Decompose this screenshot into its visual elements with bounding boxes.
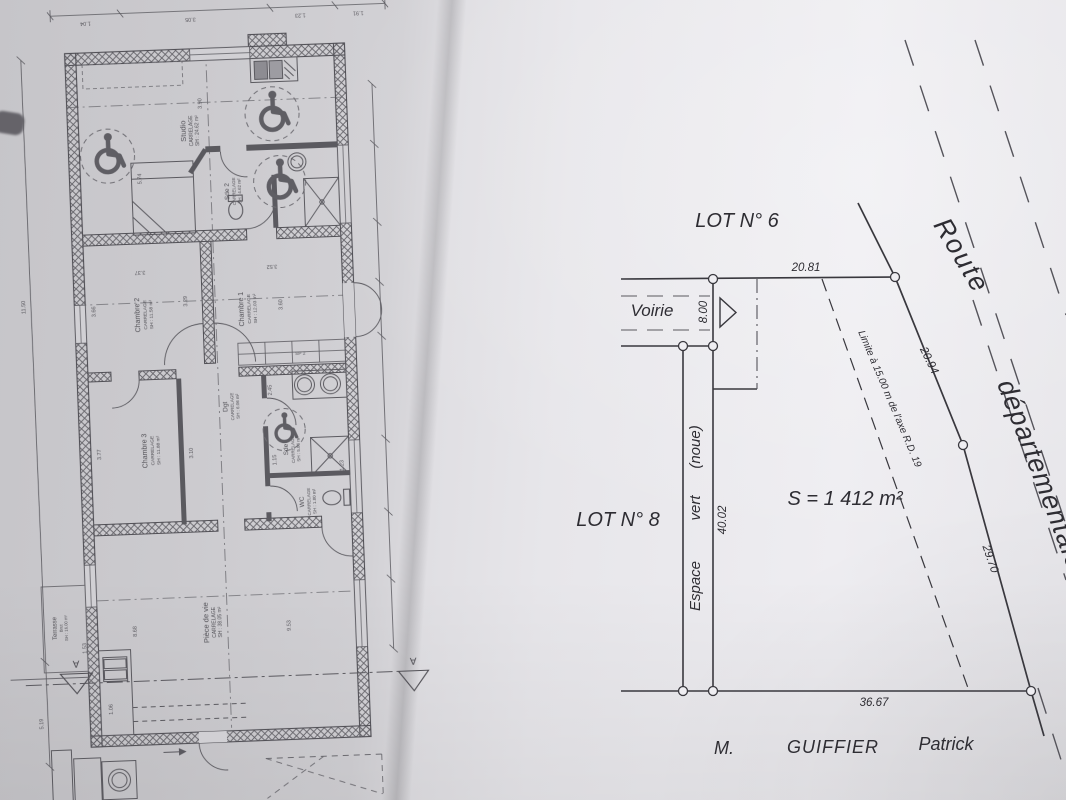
site-plan-drawing: LOT N° 6 LOT N° 8 Voirie S = 1 412 m² 20… — [560, 0, 1066, 800]
left-dimension-line — [17, 56, 54, 771]
section-marker-left-label: A — [72, 658, 79, 669]
room-label-terrasse: Terrasse Brut SH : 16.00 m² — [52, 614, 69, 641]
utility-appliances — [51, 748, 137, 800]
svg-text:CARRELAGE: CARRELAGE — [246, 294, 253, 324]
svg-text:SH : 1.80 m²: SH : 1.80 m² — [311, 488, 317, 514]
dim-kit-a: 1.53 — [82, 643, 88, 654]
room-label-chambre1: Chambre 1 CARRELAGE SH : 12.03 m² — [238, 291, 259, 326]
right-dimension-line — [368, 80, 398, 653]
section-marker-right-label: A — [409, 655, 416, 666]
svg-text:Studio: Studio — [178, 120, 188, 142]
toilet-wc — [323, 489, 351, 506]
access-arrow-icon — [720, 298, 736, 327]
shower-sde2 — [304, 177, 341, 226]
dim-wc-w: 1.23 — [339, 460, 345, 471]
dim-ch2-d: 3.29 — [183, 296, 189, 307]
area-label: S = 1 412 m² — [787, 488, 903, 510]
svg-text:SH : 11.58 m²: SH : 11.58 m² — [148, 299, 155, 329]
svg-text:SH : 11.88 m²: SH : 11.88 m² — [155, 435, 162, 465]
lot8-label: LOT N° 8 — [576, 509, 660, 531]
road-centerline-dashes — [905, 40, 1066, 766]
lot6-label: LOT N° 6 — [695, 210, 779, 232]
floor-plan-drawing: 1.04 3.05 1.23 1.91 — [0, 0, 455, 800]
svg-text:Sde 2: Sde 2 — [224, 183, 232, 201]
espace-vert-word3: (noue) — [687, 425, 704, 468]
svg-text:Chambre 1: Chambre 1 — [238, 292, 246, 327]
room-label-sde: Sde CARRELAGE SH : 5.86 m² — [282, 435, 301, 463]
room-label-piece-de-vie: Pièce de vie CARRELAGE SH : 38.05 m² — [201, 602, 225, 644]
window-midlines — [70, 49, 362, 657]
owner-first-name: Patrick — [918, 734, 974, 754]
dim-voirie-width: 8.00 — [698, 300, 710, 323]
dim-ch1-d: 3.60 — [278, 299, 284, 310]
svg-text:Pièce de vie: Pièce de vie — [201, 602, 212, 643]
svg-text:SH : 4.62 m²: SH : 4.62 m² — [236, 178, 242, 204]
dim-road-b: 29.70 — [979, 543, 1000, 576]
dim-studio-d: 3.90 — [197, 98, 203, 109]
svg-text:SH : 6.06 m²: SH : 6.06 m² — [235, 393, 241, 419]
dim-rear: 36.67 — [860, 697, 889, 709]
svg-text:CARRELAGE: CARRELAGE — [142, 300, 149, 330]
dim-placard-label: SP 2 — [295, 351, 306, 357]
owner-last-name: GUIFFIER — [787, 737, 879, 757]
top-dimension-chain — [47, 0, 388, 22]
studio-closet-dashed — [82, 61, 183, 89]
room-label-wc: WC CARRELAGE SH : 1.80 m² — [298, 487, 317, 515]
svg-text:Chambre 2: Chambre 2 — [134, 298, 142, 333]
dim-ch3-w: 3.77 — [97, 449, 103, 460]
dim-label: 1.04 — [80, 20, 91, 26]
parcel-lines — [621, 277, 1031, 691]
studio-kitchenette — [250, 57, 298, 83]
svg-text:SH : 12.03 m²: SH : 12.03 m² — [252, 293, 259, 323]
svg-text:SH : 38.05 m²: SH : 38.05 m² — [217, 606, 224, 637]
svg-text:WC: WC — [299, 496, 306, 507]
wheelchair-icon — [268, 158, 296, 198]
dim-ch2-top: 3.37 — [135, 269, 146, 275]
road-boundary-line — [858, 203, 1044, 736]
washbasin-sde2 — [288, 153, 307, 172]
wheelchair-icon — [260, 90, 288, 130]
room-label-chambre2: Chambre 2 CARRELAGE SH : 11.58 m² — [134, 297, 155, 332]
kitchen-counter — [99, 645, 248, 736]
dim-kit-b: 1.06 — [109, 704, 115, 715]
dim-label: 3.05 — [185, 16, 196, 22]
svg-text:Chambre 3: Chambre 3 — [141, 433, 149, 468]
room-label-sde2: Sde 2 CARRELAGE SH : 4.62 m² — [223, 177, 242, 205]
bed — [131, 161, 196, 235]
carport-dashed-outline — [266, 754, 383, 798]
setback-label: Limite à 15.00 m de l'axe R.D. 19 — [855, 329, 923, 470]
voirie-label: Voirie — [631, 301, 674, 320]
svg-text:SH : 5.86 m²: SH : 5.86 m² — [295, 436, 301, 462]
road-name-line1: Route — [928, 212, 996, 298]
dim-front: 20.81 — [791, 262, 821, 274]
photo-of-architectural-plans: 1.04 3.05 1.23 1.91 — [0, 0, 1066, 800]
dim-road-a: 20.94 — [917, 344, 941, 376]
dim-vie-w: 9.53 — [287, 620, 293, 631]
entry-arrow — [163, 749, 185, 756]
svg-text:Dgt: Dgt — [222, 401, 229, 412]
section-marker-right — [399, 670, 430, 691]
dim-label: 1.23 — [295, 11, 306, 17]
dim-label: 1.91 — [353, 9, 364, 15]
espace-vert-word1: Espace — [687, 561, 704, 611]
dim-vie-d: 8.68 — [133, 626, 139, 637]
dim-studio-w: 5.74 — [137, 173, 143, 184]
room-label-chambre3: Chambre 3 CARRELAGE SH : 11.88 m² — [141, 433, 162, 468]
svg-text:CARRELAGE: CARRELAGE — [149, 436, 156, 466]
dim-side: 40.02 — [717, 505, 729, 534]
dim-placard-d: 2.45 — [267, 385, 273, 396]
room-label-studio: Studio CARRELAGE SH : 24.62 m² — [178, 114, 201, 146]
room-label-dgt: Dgt CARRELAGE SH : 6.06 m² — [222, 392, 241, 420]
wheelchair-icon — [96, 133, 124, 173]
setback-limit-line — [822, 279, 968, 688]
owner-title: M. — [714, 738, 734, 758]
dim-sde-w: 1.15 — [272, 454, 278, 465]
svg-text:Sde: Sde — [283, 443, 290, 455]
svg-text:SH : 16.00 m²: SH : 16.00 m² — [63, 614, 69, 641]
dim-ch1-top: 3.52 — [266, 263, 277, 269]
dim-left-total: 11.50 — [21, 301, 28, 315]
dim-ch2-w: 3.66 — [91, 306, 97, 317]
espace-vert-word2: vert — [687, 495, 704, 521]
dim-ch3-d: 3.10 — [189, 448, 195, 459]
road-name-line2: départementale — [991, 375, 1066, 574]
dim-left-lower: 5.19 — [39, 719, 45, 730]
svg-text:SH : 24.62 m²: SH : 24.62 m² — [194, 115, 201, 146]
